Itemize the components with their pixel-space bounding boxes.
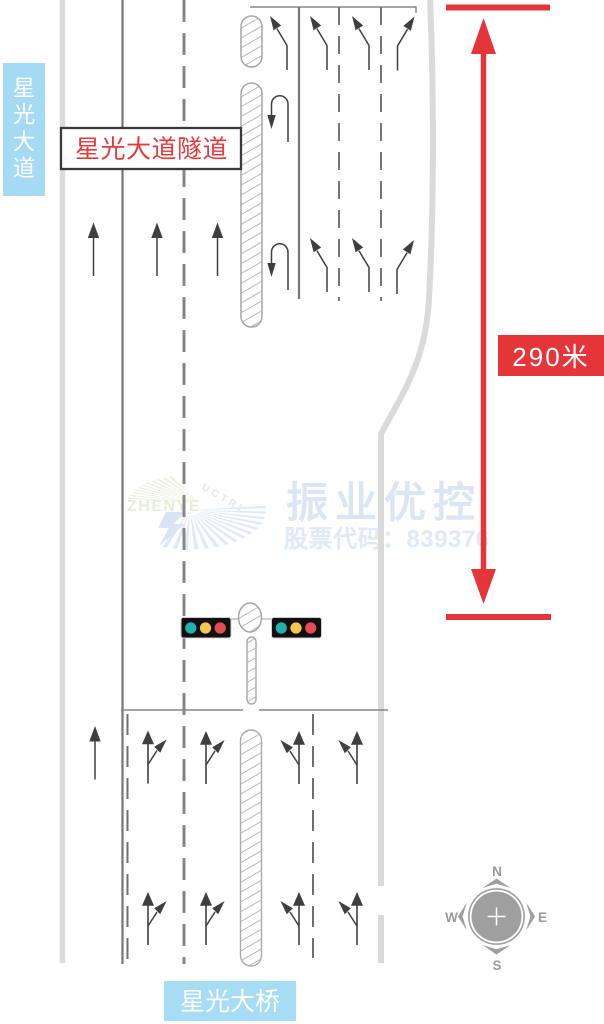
svg-text:振业优控: 振业优控	[286, 479, 482, 526]
svg-text:星光大桥: 星光大桥	[180, 988, 280, 1016]
svg-text:道: 道	[13, 156, 36, 181]
svg-text:星光大道隧道: 星光大道隧道	[75, 136, 228, 164]
svg-text:N: N	[492, 864, 502, 879]
svg-text:光: 光	[13, 103, 36, 128]
svg-text:W: W	[445, 910, 458, 925]
svg-text:ZHENYE: ZHENYE	[127, 498, 201, 515]
svg-text:大: 大	[13, 129, 36, 154]
svg-text:S: S	[492, 958, 501, 973]
svg-text:星: 星	[13, 76, 36, 101]
svg-text:290米: 290米	[512, 342, 589, 372]
svg-text:E: E	[538, 910, 547, 925]
svg-text:股票代码：839376: 股票代码：839376	[284, 526, 490, 553]
